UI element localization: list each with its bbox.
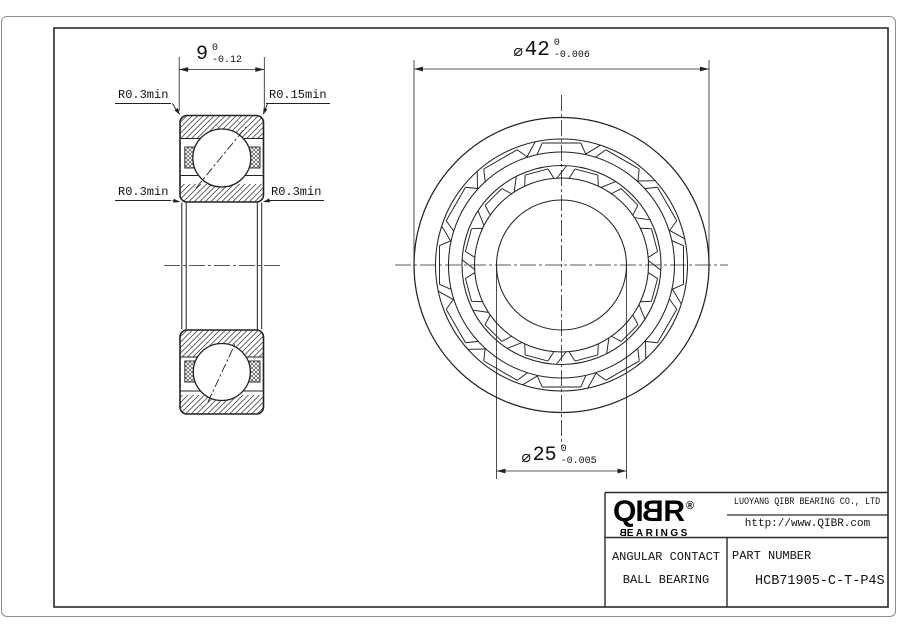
- radius-label-mid-right: R0.3min: [268, 185, 324, 201]
- width-tolerance: 0 -0.12: [212, 43, 242, 67]
- radius-label-mid-left: R0.3min: [115, 185, 171, 201]
- logo-text: QI: [613, 495, 643, 528]
- product-type-line2: BALL BEARING: [623, 573, 709, 587]
- product-type-line1: ANGULAR CONTACT: [612, 550, 720, 564]
- registered-mark: ®: [686, 500, 694, 512]
- brand-logo-subtitle: BEARINGS: [617, 528, 694, 539]
- od-tol-lower: -0.006: [554, 50, 590, 62]
- outer-diameter-tolerance: 0 -0.006: [554, 38, 590, 62]
- bearing-front-view: [395, 60, 728, 479]
- drawing-page: 9 0 -0.12 R0.3min R0.15min R0.3min R0.3m…: [0, 0, 900, 636]
- brand-logo: QIBR® BEARINGS: [613, 497, 694, 539]
- bore-diameter-value: 25: [533, 446, 557, 466]
- width-tol-upper: 0: [212, 43, 242, 55]
- width-value: 9: [196, 45, 208, 65]
- company-website: http://www.QIBR.com: [745, 518, 870, 530]
- logo-mirrored-letter: B: [643, 497, 664, 527]
- part-number-value: HCB71905-C-T-P4S: [755, 574, 885, 589]
- outer-diameter-dimension: ⌀ 42 0 -0.006: [513, 38, 590, 62]
- diameter-symbol: ⌀: [513, 41, 523, 60]
- outer-diameter-value: 42: [525, 40, 550, 61]
- radius-label-top-right: R0.15min: [266, 88, 330, 104]
- company-website-cell: http://www.QIBR.com: [727, 518, 888, 530]
- width-tol-lower: -0.12: [212, 55, 242, 67]
- logo-sub-mirrored-letter: B: [617, 528, 627, 539]
- bore-tol-lower: -0.005: [561, 456, 597, 468]
- product-type-line1-cell: ANGULAR CONTACT: [605, 550, 727, 564]
- product-type-line2-cell: BALL BEARING: [605, 573, 727, 587]
- od-tol-upper: 0: [554, 38, 590, 50]
- logo-text: R: [663, 495, 684, 528]
- width-dimension: 9 0 -0.12: [196, 43, 242, 67]
- radius-label-top-left: R0.3min: [115, 88, 171, 104]
- logo-sub-text: EARINGS: [627, 528, 690, 539]
- company-name-cell: LUOYANG QIBR BEARING CO., LTD: [727, 497, 888, 508]
- part-number-label: PART NUMBER: [732, 549, 811, 563]
- brand-logo-wordmark: QIBR®: [613, 497, 694, 527]
- company-name: LUOYANG QIBR BEARING CO., LTD: [734, 497, 880, 508]
- bearing-section-view: [164, 57, 281, 414]
- bore-tol-upper: 0: [561, 444, 597, 456]
- bore-diameter-dimension: ⌀ 25 0 -0.005: [521, 444, 597, 468]
- bore-diameter-tolerance: 0 -0.005: [561, 444, 597, 468]
- diameter-symbol: ⌀: [521, 447, 531, 466]
